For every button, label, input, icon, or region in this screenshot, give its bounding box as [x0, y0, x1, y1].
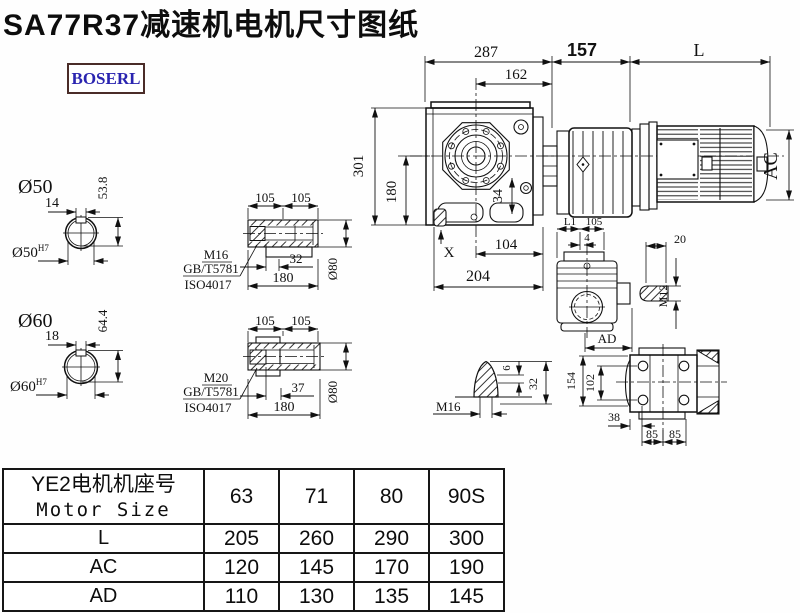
table-header-row: YE2电机机座号 Motor Size 63 71 80 90S [3, 469, 504, 524]
size-63: 63 [204, 469, 279, 524]
dim-34-label: 34 [491, 189, 506, 203]
size-71: 71 [279, 469, 354, 524]
hollow1-d2-label: 105 [291, 190, 311, 205]
table-header-cell: YE2电机机座号 Motor Size [3, 469, 204, 524]
hollow-shaft-m20: 105 105 37 180 Ø80 M20 GB/T5781 ISO4017 [183, 313, 352, 419]
header-cn: YE2电机机座号 [4, 472, 203, 498]
AC-90s: 190 [429, 553, 504, 582]
rear-85a-label: 85 [646, 427, 658, 441]
size-80: 80 [354, 469, 429, 524]
dim-AC-label: AC [760, 152, 782, 180]
table-row-AD: AD 110 130 135 145 [3, 582, 504, 611]
AD-63: 110 [204, 582, 279, 611]
L-71: 260 [279, 524, 354, 553]
L-80: 290 [354, 524, 429, 553]
shaft60-keyw-label: 18 [45, 329, 59, 344]
dim-162-label: 162 [505, 67, 528, 83]
shaft50-bore-label: Ø50H7 [12, 243, 49, 261]
row-label-L: L [3, 524, 204, 553]
hollow1-thread-label: M16 [204, 247, 229, 262]
hollow1-d1-label: 105 [255, 190, 275, 205]
dim-301-label: 301 [351, 155, 367, 178]
table-row-AC: AC 120 145 170 190 [3, 553, 504, 582]
hollow2-std1-label: GB/T5781 [183, 384, 239, 399]
rear-85b-label: 85 [669, 427, 681, 441]
size-90s: 90S [429, 469, 504, 524]
dim-287-label: 287 [474, 44, 498, 61]
shaft50-label: Ø50 [18, 176, 52, 198]
hollow1-depth-label: 32 [290, 251, 303, 266]
header-en: Motor Size [4, 498, 203, 522]
rear-154-label: 154 [564, 372, 578, 390]
AD-80: 135 [354, 582, 429, 611]
motor-size-table: YE2电机机座号 Motor Size 63 71 80 90S L 205 2… [2, 468, 505, 612]
hollow2-depth-label: 37 [292, 380, 306, 395]
AD-90s: 145 [429, 582, 504, 611]
AC-71: 145 [279, 553, 354, 582]
hollow1-dia-label: Ø80 [325, 258, 340, 280]
hollow2-dia-label: Ø80 [325, 381, 340, 403]
shaft60-keyh-label: 64.4 [95, 309, 110, 332]
L-63: 205 [204, 524, 279, 553]
rear-view: 154 102 38 85 85 [564, 344, 727, 447]
key-M12-label: M12 [656, 285, 670, 308]
side-4-label: 4 [584, 232, 590, 244]
motor [649, 122, 768, 209]
cone-6-label: 6 [501, 365, 513, 371]
hollow2-d2-label: 105 [291, 313, 311, 328]
hollow-shaft-m16: 105 105 32 180 Ø80 M16 GB/T5781 ISO4017 [183, 190, 352, 292]
hollow1-len-label: 180 [273, 271, 294, 286]
rear-102-label: 102 [583, 374, 597, 392]
dim-104-label: 104 [495, 237, 518, 253]
table-row-L: L 205 260 290 300 [3, 524, 504, 553]
shaft-detail-50: Ø50 14 53.8 Ø50H7 [12, 176, 123, 265]
gearbox-side-view: L1 105 4 AD [557, 216, 632, 352]
side-105-label: 105 [586, 216, 603, 228]
dim-204-label: 204 [466, 268, 490, 285]
dim-L-label: L [694, 40, 705, 60]
hollow1-std2-label: ISO4017 [185, 277, 232, 292]
side-AD-label: AD [598, 331, 617, 346]
hollow2-thread-label: M20 [204, 370, 229, 385]
hollow1-std1-label: GB/T5781 [183, 261, 239, 276]
AC-80: 170 [354, 553, 429, 582]
dim-157-label: 157 [567, 40, 597, 60]
row-label-AC: AC [3, 553, 204, 582]
key-20-label: 20 [674, 232, 686, 246]
dim-X-label: X [444, 245, 455, 261]
drawing-page: SA77R37减速机电机尺寸图纸 BOSERL [0, 0, 800, 613]
side-L1-label: L1 [564, 216, 576, 228]
hollow2-std2-label: ISO4017 [185, 400, 232, 415]
dim-180-label: 180 [384, 181, 400, 204]
key-detail: 20 M12 [640, 232, 686, 329]
motor-adapter [543, 124, 649, 217]
hollow2-d1-label: 105 [255, 313, 275, 328]
L-90s: 300 [429, 524, 504, 553]
row-label-AD: AD [3, 582, 204, 611]
shaft50-keyw-label: 14 [45, 196, 59, 211]
hollow2-len-label: 180 [274, 400, 295, 415]
cone-32-label: 32 [526, 378, 540, 390]
shaft-detail-60: Ø60 18 64.4 Ø60H7 [10, 309, 123, 399]
AD-71: 130 [279, 582, 354, 611]
cone-detail: M16 6 32 [433, 361, 552, 418]
AC-63: 120 [204, 553, 279, 582]
shaft50-keyh-label: 53.8 [95, 177, 110, 200]
cone-M16-label: M16 [436, 399, 461, 414]
shaft60-bore-label: Ø60H7 [10, 377, 47, 395]
rear-38-label: 38 [608, 410, 620, 424]
